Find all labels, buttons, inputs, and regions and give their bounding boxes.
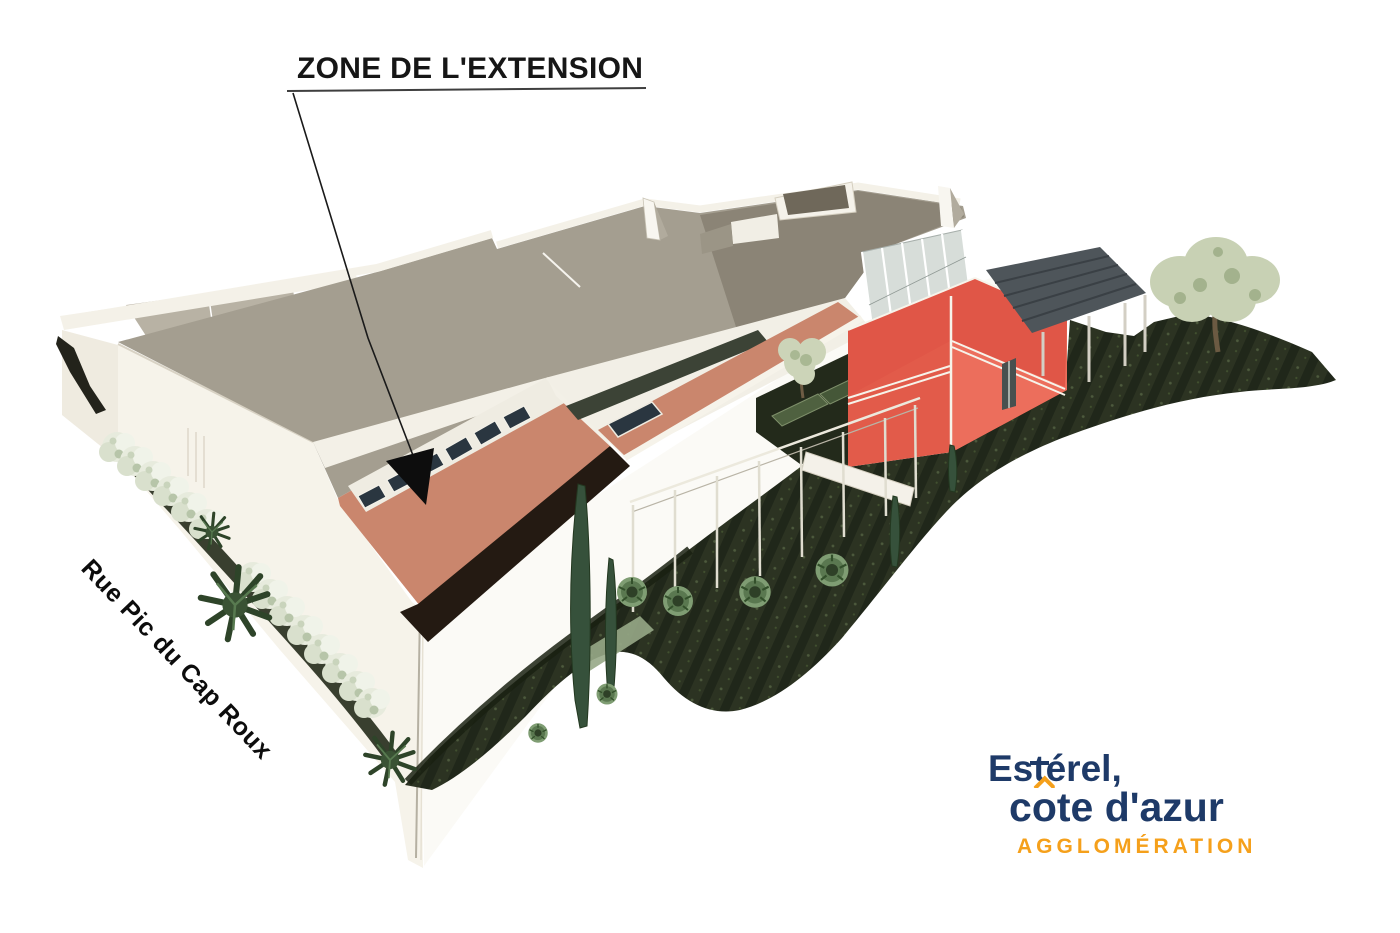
screenshot-canvas: ZONE DE L'EXTENSION Rue Pic du Cap Roux …	[0, 0, 1400, 933]
orange-circumflex	[1034, 775, 1055, 788]
title-underline	[287, 88, 646, 91]
agglomeration-logo: Estérel, cote d'azur AGGLOMÉRATION	[985, 748, 1285, 868]
logo-line3: AGGLOMÉRATION	[1017, 836, 1256, 857]
logo-line1: Estérel,	[988, 750, 1122, 787]
logo-line2: cote d'azur	[1009, 787, 1224, 828]
extension-zone-label: ZONE DE L'EXTENSION	[297, 52, 643, 86]
